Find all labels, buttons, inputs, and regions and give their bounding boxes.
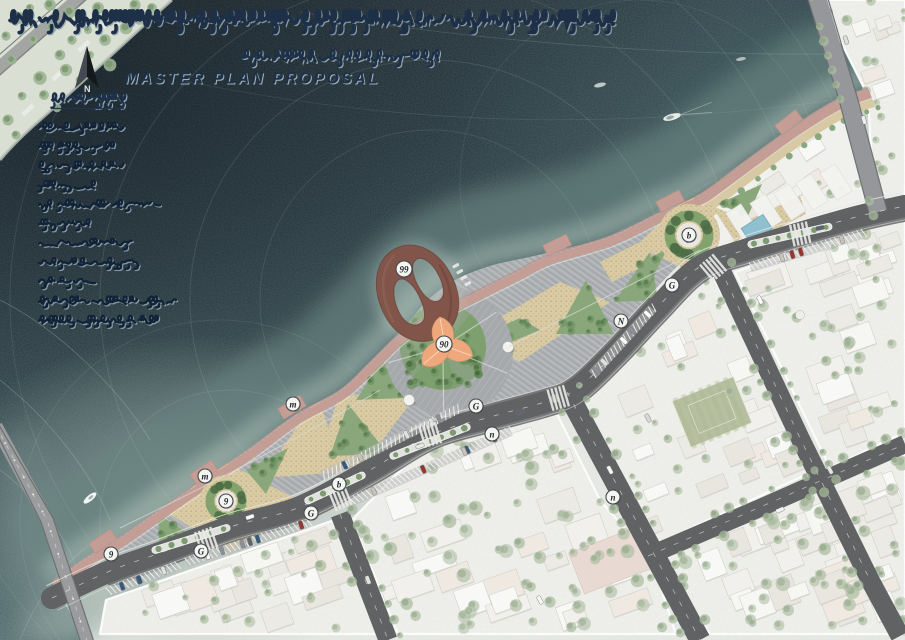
svg-text:G: G — [308, 508, 315, 518]
svg-text:9: 9 — [109, 549, 114, 559]
svg-text:G: G — [198, 546, 205, 556]
svg-text:90: 90 — [440, 339, 450, 349]
svg-text:n: n — [610, 492, 615, 502]
svg-text:N: N — [617, 316, 625, 326]
svg-text:n: n — [489, 429, 494, 439]
svg-text:MASTER PLAN PROPOSAL: MASTER PLAN PROPOSAL — [125, 71, 380, 88]
svg-text:G: G — [669, 280, 676, 290]
svg-text:9: 9 — [224, 496, 229, 506]
svg-text:b: b — [337, 479, 342, 489]
svg-text:m: m — [201, 471, 208, 481]
svg-text:99: 99 — [400, 264, 410, 274]
svg-text:b: b — [687, 230, 692, 240]
svg-text:G: G — [473, 401, 480, 411]
svg-text:m: m — [289, 399, 296, 409]
svg-text:N: N — [84, 84, 91, 94]
